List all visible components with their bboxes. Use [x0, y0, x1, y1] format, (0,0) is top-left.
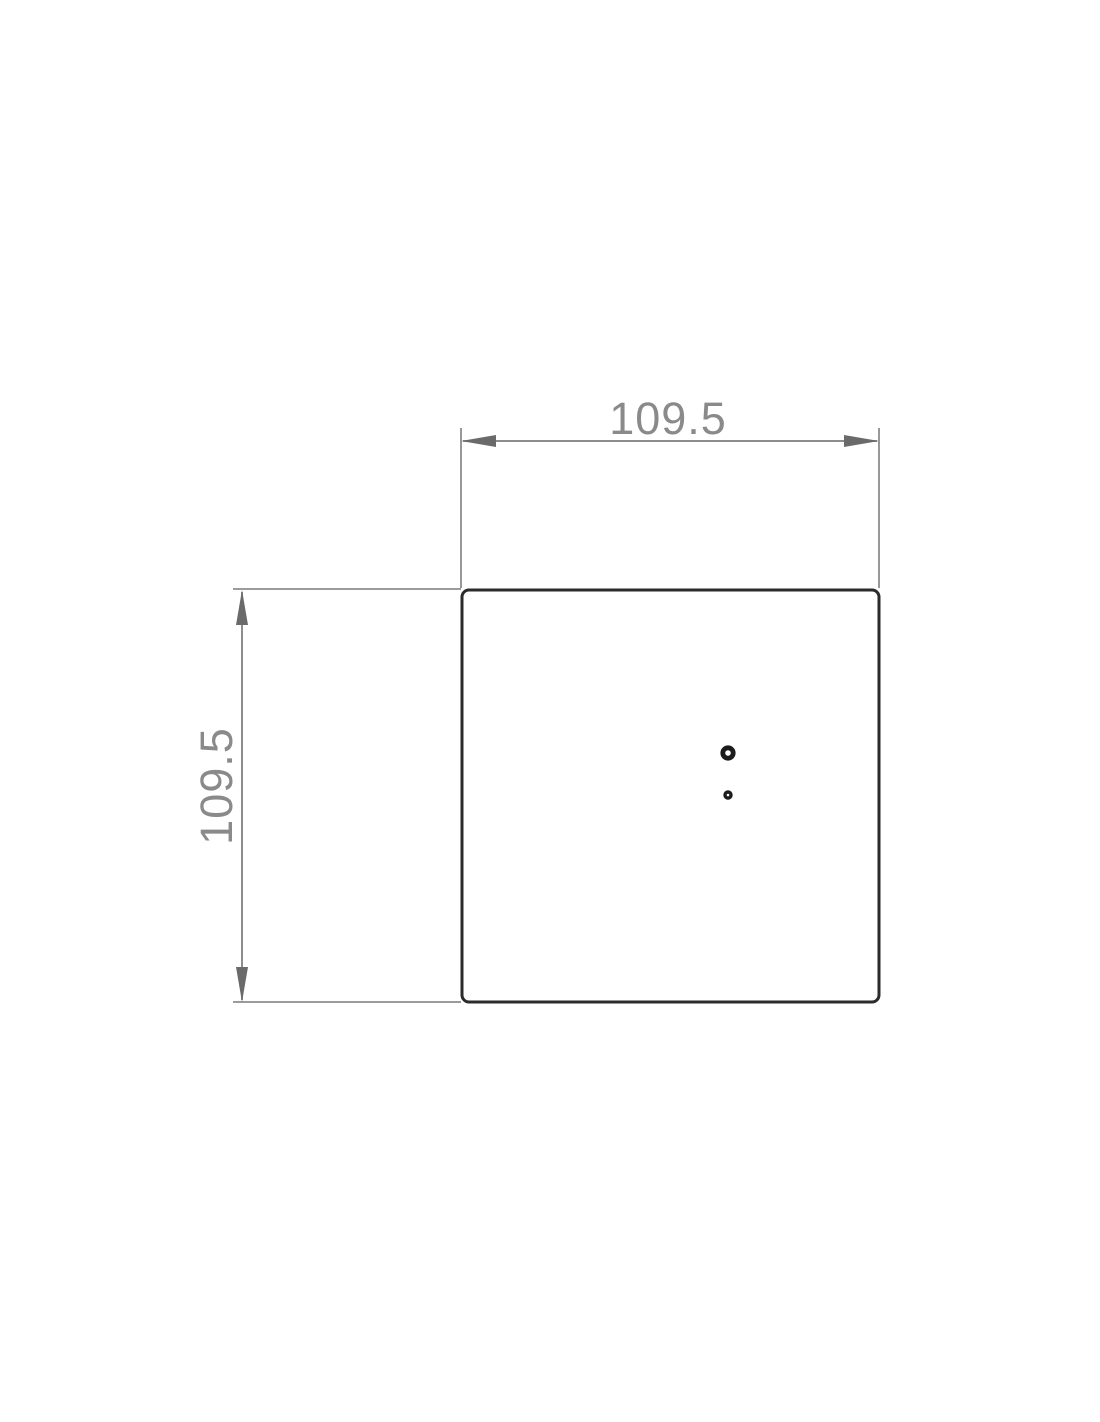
height-dimension: 109.5 — [191, 589, 461, 1002]
width-dimension-arrow-left — [461, 435, 496, 447]
width-dimension-arrow-right — [844, 435, 879, 447]
width-dimension: 109.5 — [461, 393, 879, 588]
technical-drawing-canvas: 109.5 109.5 — [0, 0, 1100, 1422]
height-dimension-label: 109.5 — [191, 727, 242, 845]
technical-drawing-page: 109.5 109.5 — [0, 0, 1100, 1422]
height-dimension-arrow-bottom — [236, 967, 248, 1002]
part-outline-square — [462, 590, 879, 1002]
width-dimension-label: 109.5 — [609, 393, 727, 444]
height-dimension-arrow-top — [236, 590, 248, 625]
